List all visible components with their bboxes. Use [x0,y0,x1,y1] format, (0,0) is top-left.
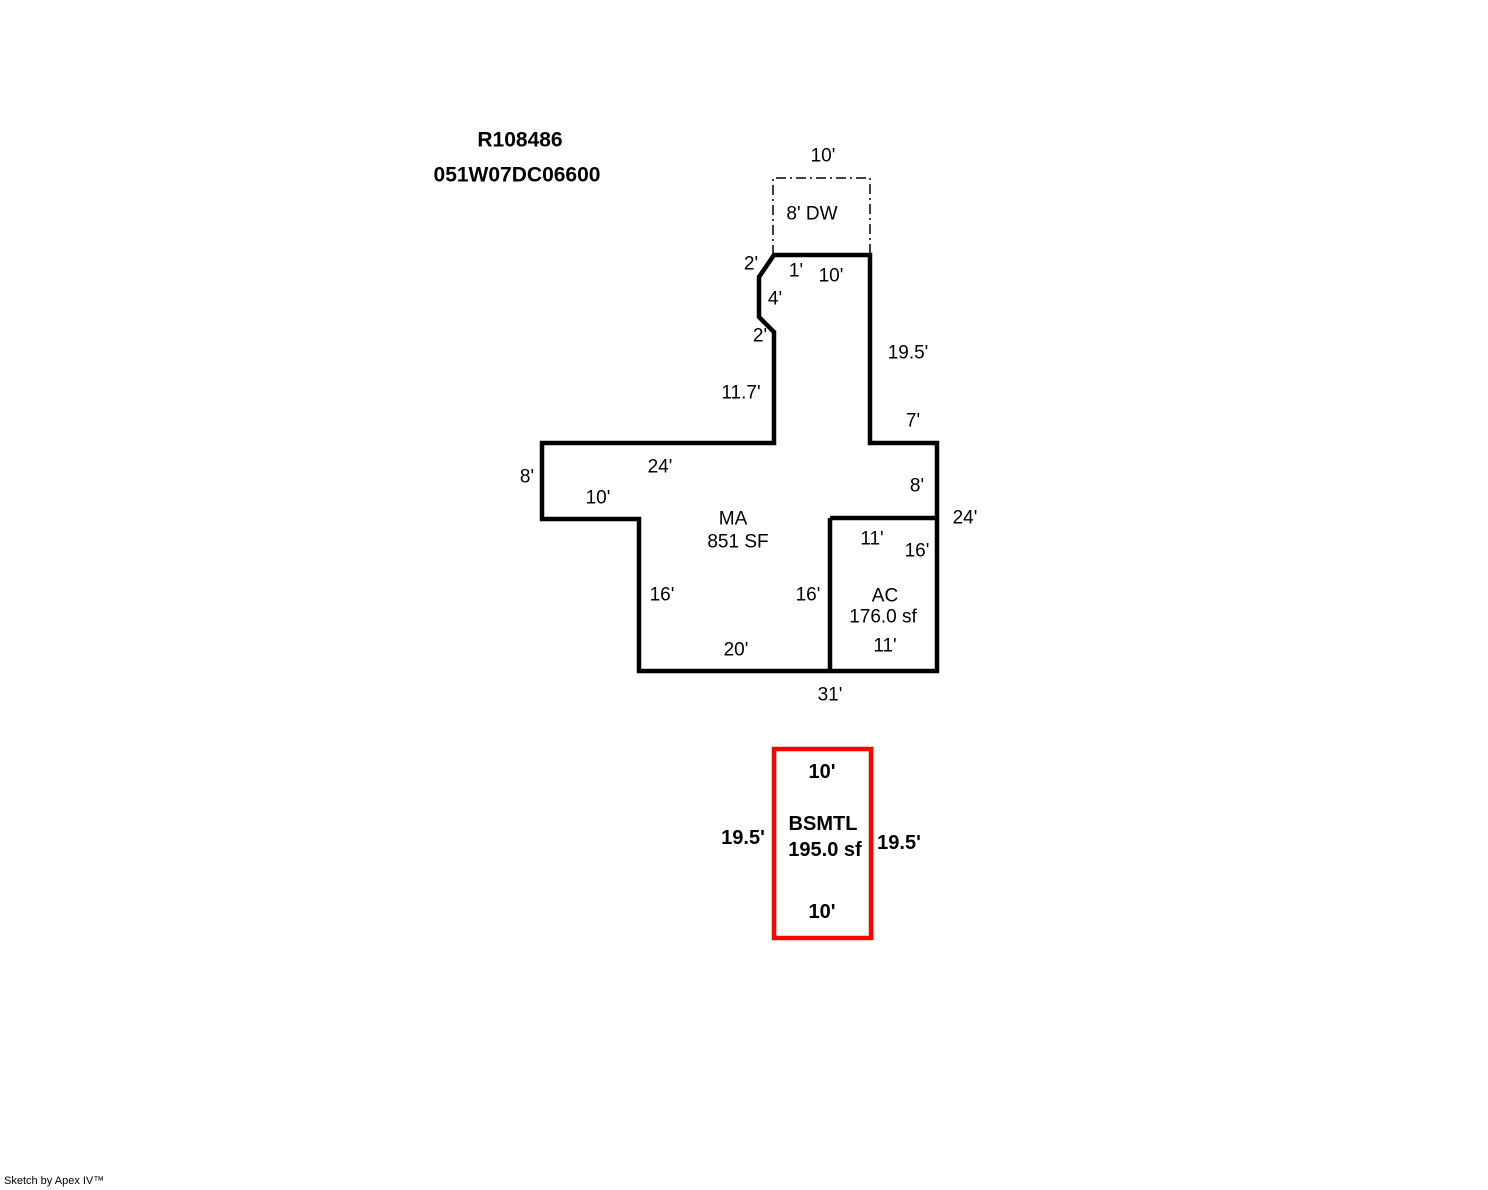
dim-ac-bottom: 11' [873,636,896,657]
dim-bsmt-left: 19.5' [721,827,765,849]
dim-top-inset: 1' [789,261,803,282]
dim-right-total: 24' [953,508,978,529]
apex-sketch-page: R108486 051W07DC06600 10' 8' DW 2' 1' 10… [0,0,1488,1190]
ac-area-size: 176.0 sf [849,607,917,628]
sketch-canvas: R108486 051W07DC06600 10' 8' DW 2' 1' 10… [0,0,1488,1190]
dim-right-upper: 8' [910,476,924,497]
ac-area-code: AC [872,586,898,607]
basement-area-code: BSMTL [789,813,858,835]
dim-notch-lower: 2' [753,326,767,347]
dim-upper-left-height: 8' [520,467,534,488]
dim-stem-right: 19.5' [888,343,929,364]
dim-notch-upper: 2' [744,254,758,275]
dim-ac-left: 16' [796,585,821,606]
dim-ac-top: 11' [860,529,883,550]
sketch-credit-text: Sketch by Apex IV™ [4,1175,104,1187]
dim-right-jog: 7' [906,411,920,432]
dim-bottom-main: 20' [724,640,749,661]
map-taxlot-text: 051W07DC06600 [434,164,601,187]
main-area-size: 851 SF [707,532,768,553]
dim-bsmt-top: 10' [808,761,835,783]
dim-left-step-width: 10' [586,488,611,509]
dim-bsmt-bottom: 10' [808,901,835,923]
dim-upper-left-width: 24' [648,457,673,478]
dim-bsmt-right: 19.5' [877,832,921,854]
driveway-area-label: 8' DW [786,204,837,225]
basement-area-size: 195.0 sf [788,839,862,861]
dim-dw-top-width: 10' [811,146,836,167]
dim-bottom-total: 31' [818,685,843,706]
parcel-id-text: R108486 [477,129,562,152]
dim-ac-right: 16' [905,541,930,562]
dim-left-lower: 16' [650,585,675,606]
dim-top-width: 10' [819,266,844,287]
dim-stem-left: 11.7' [721,383,760,404]
dim-notch-mid: 4' [768,289,782,310]
main-area-code: MA [719,509,748,530]
